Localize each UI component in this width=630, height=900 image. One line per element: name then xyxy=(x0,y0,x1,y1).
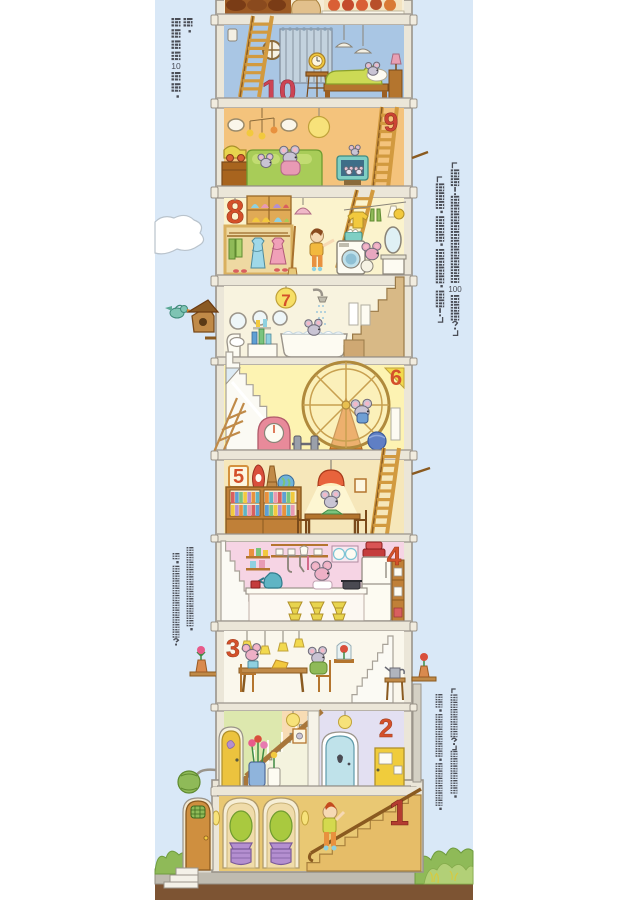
svg-text:5: 5 xyxy=(233,466,244,488)
svg-text:100: 100 xyxy=(448,285,462,294)
svg-text:9: 9 xyxy=(384,107,398,137)
svg-text:3: 3 xyxy=(226,635,240,663)
svg-text:1: 1 xyxy=(389,792,409,833)
svg-text:7: 7 xyxy=(281,291,290,310)
svg-text:2: 2 xyxy=(379,713,393,743)
svg-text:4: 4 xyxy=(387,541,402,571)
svg-text:10: 10 xyxy=(171,61,181,71)
svg-text:6: 6 xyxy=(390,365,402,390)
